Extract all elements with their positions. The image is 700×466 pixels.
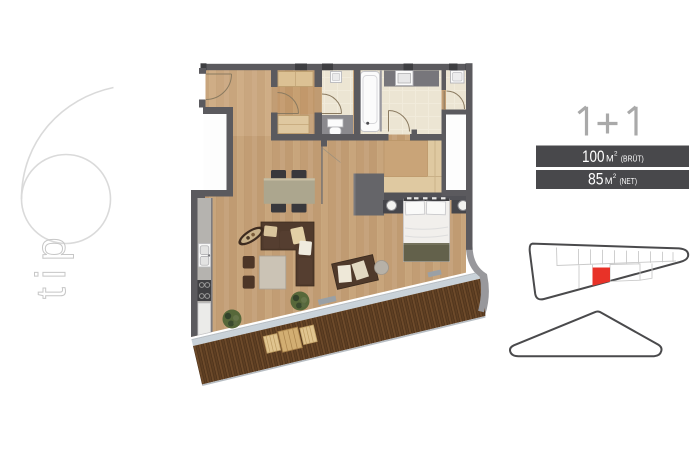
svg-text:tip: tip xyxy=(27,229,74,299)
svg-text:2: 2 xyxy=(614,151,618,158)
svg-text:(NET): (NET) xyxy=(620,177,638,186)
svg-text:100: 100 xyxy=(582,147,605,166)
svg-text:M: M xyxy=(606,154,614,164)
svg-text:85: 85 xyxy=(588,170,604,189)
svg-text:M: M xyxy=(605,176,613,186)
svg-text:(BRÜT): (BRÜT) xyxy=(621,155,644,164)
svg-text:2: 2 xyxy=(613,173,617,180)
